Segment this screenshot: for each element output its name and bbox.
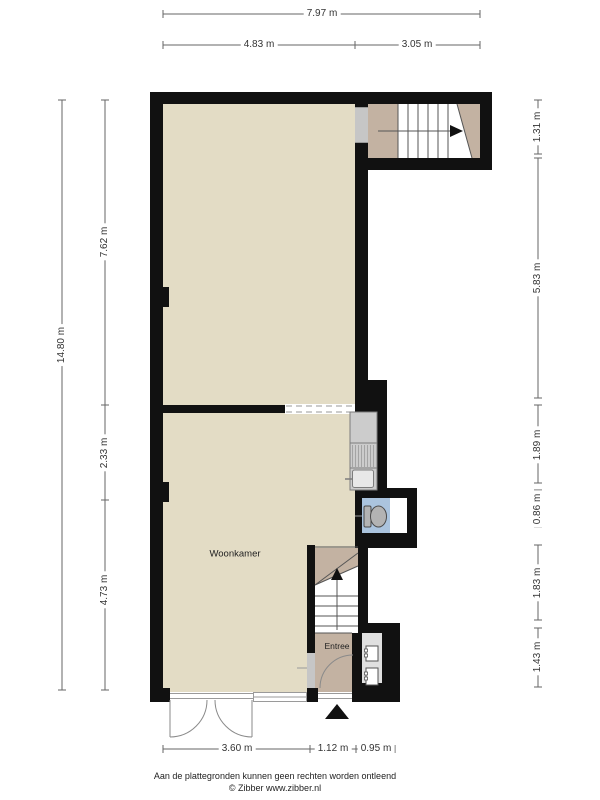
dim-right-4: 0.86 m [532, 491, 544, 528]
wall-pilaster-2 [163, 482, 169, 502]
dim-top-total: 7.97 m [304, 8, 341, 20]
entrance-arrow-icon [325, 704, 349, 719]
toilet-door-gap [390, 498, 407, 533]
entree-side-door [307, 653, 315, 688]
meter-box-2 [366, 668, 378, 685]
room-label-woonkamer: Woonkamer [209, 549, 260, 560]
dim-bottom-3: 0.95 m [358, 743, 395, 755]
toilet-tank [364, 506, 371, 527]
dim-left-total: 14.80 m [56, 324, 68, 366]
toilet-bowl-icon [371, 506, 387, 527]
dim-left-2: 2.33 m [99, 435, 111, 472]
french-doors [170, 700, 252, 737]
footer-disclaimer: Aan de plattegronden kunnen geen rechten… [0, 771, 550, 781]
floor-areas [163, 104, 480, 692]
floorplan-page: 7.97 m 4.83 m 3.05 m 14.80 m 7.62 m 2.33… [0, 0, 600, 800]
dim-bottom-1: 3.60 m [219, 743, 256, 755]
dim-right-3: 1.89 m [532, 427, 544, 464]
meter-box-1 [366, 646, 378, 661]
dim-top-left: 4.83 m [241, 39, 278, 51]
landing-door [355, 108, 368, 142]
dim-right-5: 1.83 m [532, 565, 544, 602]
room-label-entree: Entree [324, 641, 349, 651]
kitchen-sink [353, 470, 374, 488]
kitchen-counter [345, 412, 377, 490]
dim-right-6: 1.43 m [532, 639, 544, 676]
wall-pilaster-1 [163, 287, 169, 307]
dim-bottom-2: 1.12 m [315, 743, 352, 755]
divider-wall [163, 405, 285, 413]
dim-right-2: 5.83 m [532, 260, 544, 297]
footer-copyright: © Zibber www.zibber.nl [0, 783, 550, 793]
dim-left-1: 7.62 m [99, 224, 111, 261]
dim-right-1: 1.31 m [532, 109, 544, 146]
dim-left-3: 4.73 m [99, 572, 111, 609]
dim-top-right: 3.05 m [399, 39, 436, 51]
floorplan-drawing [0, 0, 600, 800]
room-upper-floor [163, 104, 355, 405]
